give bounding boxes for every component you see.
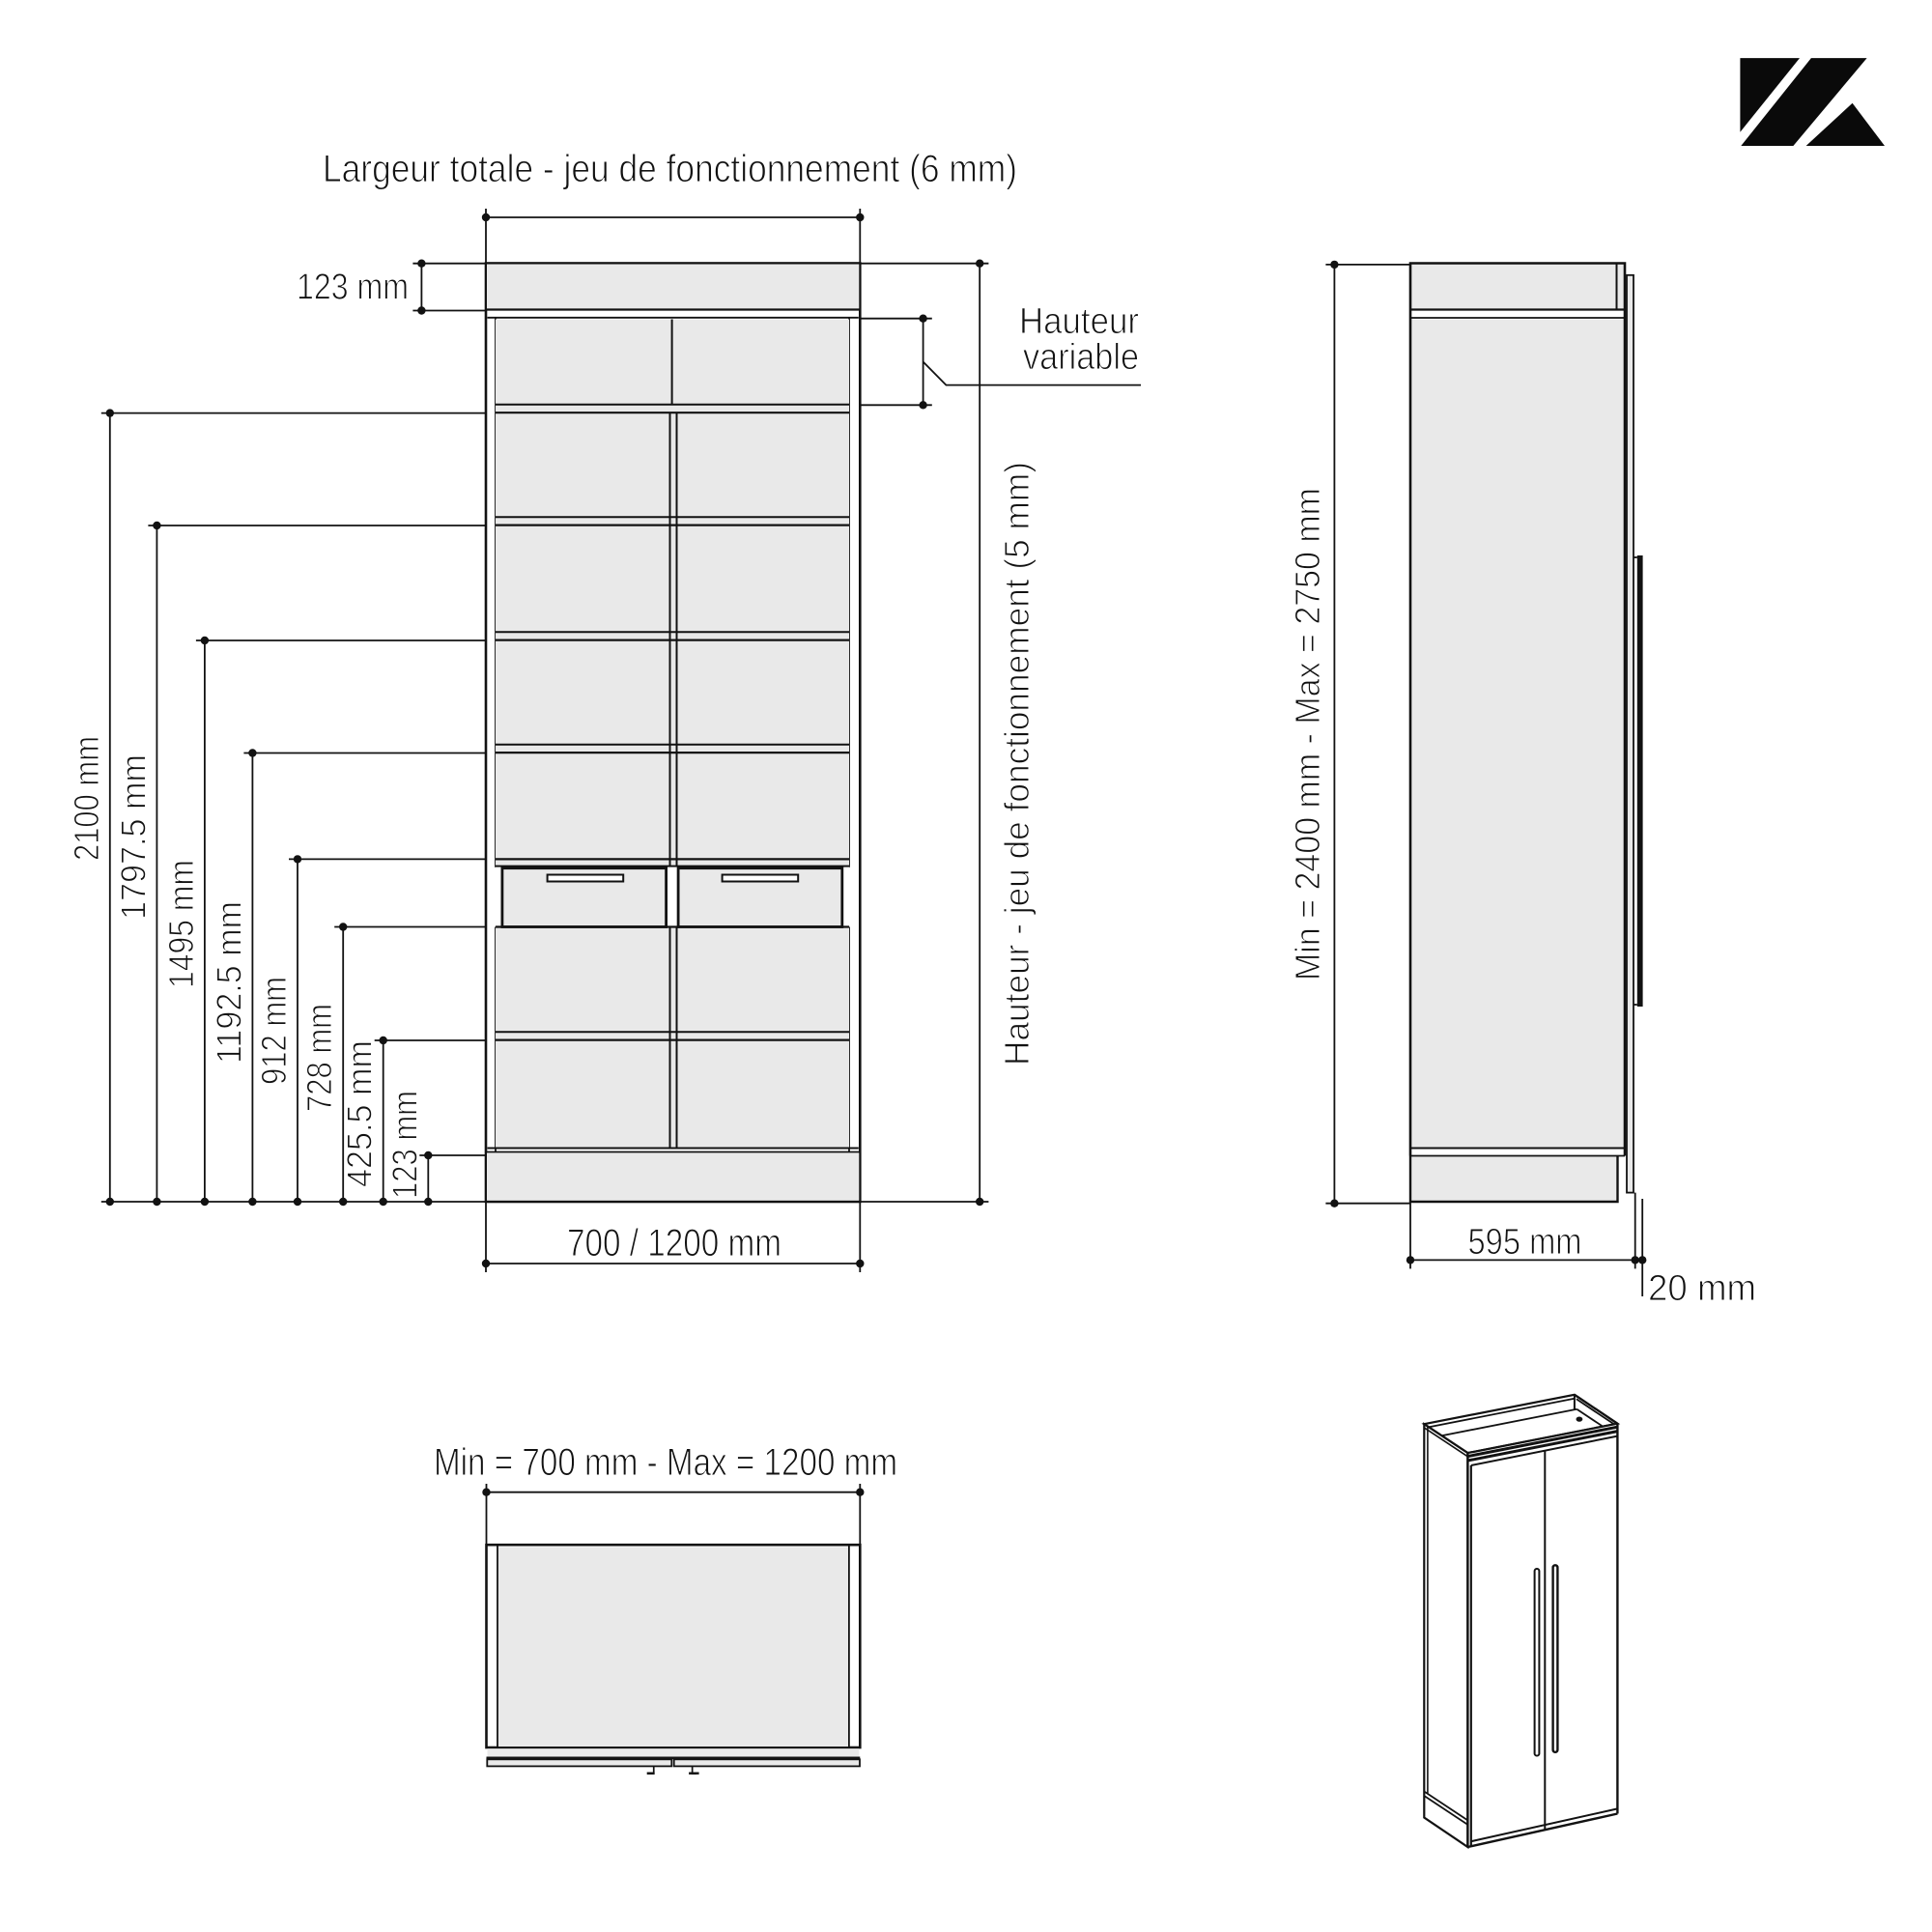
svg-text:1495 mm: 1495 mm (161, 860, 201, 988)
svg-text:variable: variable (1023, 337, 1139, 378)
svg-text:425.5 mm: 425.5 mm (340, 1040, 380, 1187)
svg-text:123 mm: 123 mm (297, 268, 409, 308)
svg-text:595 mm: 595 mm (1468, 1222, 1582, 1263)
svg-text:1192.5 mm: 1192.5 mm (209, 901, 248, 1064)
svg-text:728 mm: 728 mm (299, 1004, 339, 1112)
svg-text:1797.5 mm: 1797.5 mm (113, 754, 153, 920)
svg-text:Min = 2400 mm - Max = 2750 mm: Min = 2400 mm - Max = 2750 mm (1288, 488, 1327, 980)
svg-text:912 mm: 912 mm (254, 977, 294, 1085)
svg-text:20 mm: 20 mm (1648, 1268, 1756, 1309)
svg-text:2100 mm: 2100 mm (67, 736, 106, 861)
svg-text:Largeur totale - jeu de foncti: Largeur totale - jeu de fonctionnement (… (323, 148, 1017, 190)
svg-text:700 / 1200 mm: 700 / 1200 mm (567, 1222, 781, 1264)
svg-text:Hauteur: Hauteur (1019, 301, 1139, 342)
svg-text:123 mm: 123 mm (384, 1091, 424, 1199)
svg-text:Min = 700 mm - Max = 1200 mm: Min = 700 mm - Max = 1200 mm (434, 1441, 897, 1484)
svg-text:Hauteur - jeu de fonctionnemen: Hauteur - jeu de fonctionnement (5 mm) (997, 462, 1037, 1065)
